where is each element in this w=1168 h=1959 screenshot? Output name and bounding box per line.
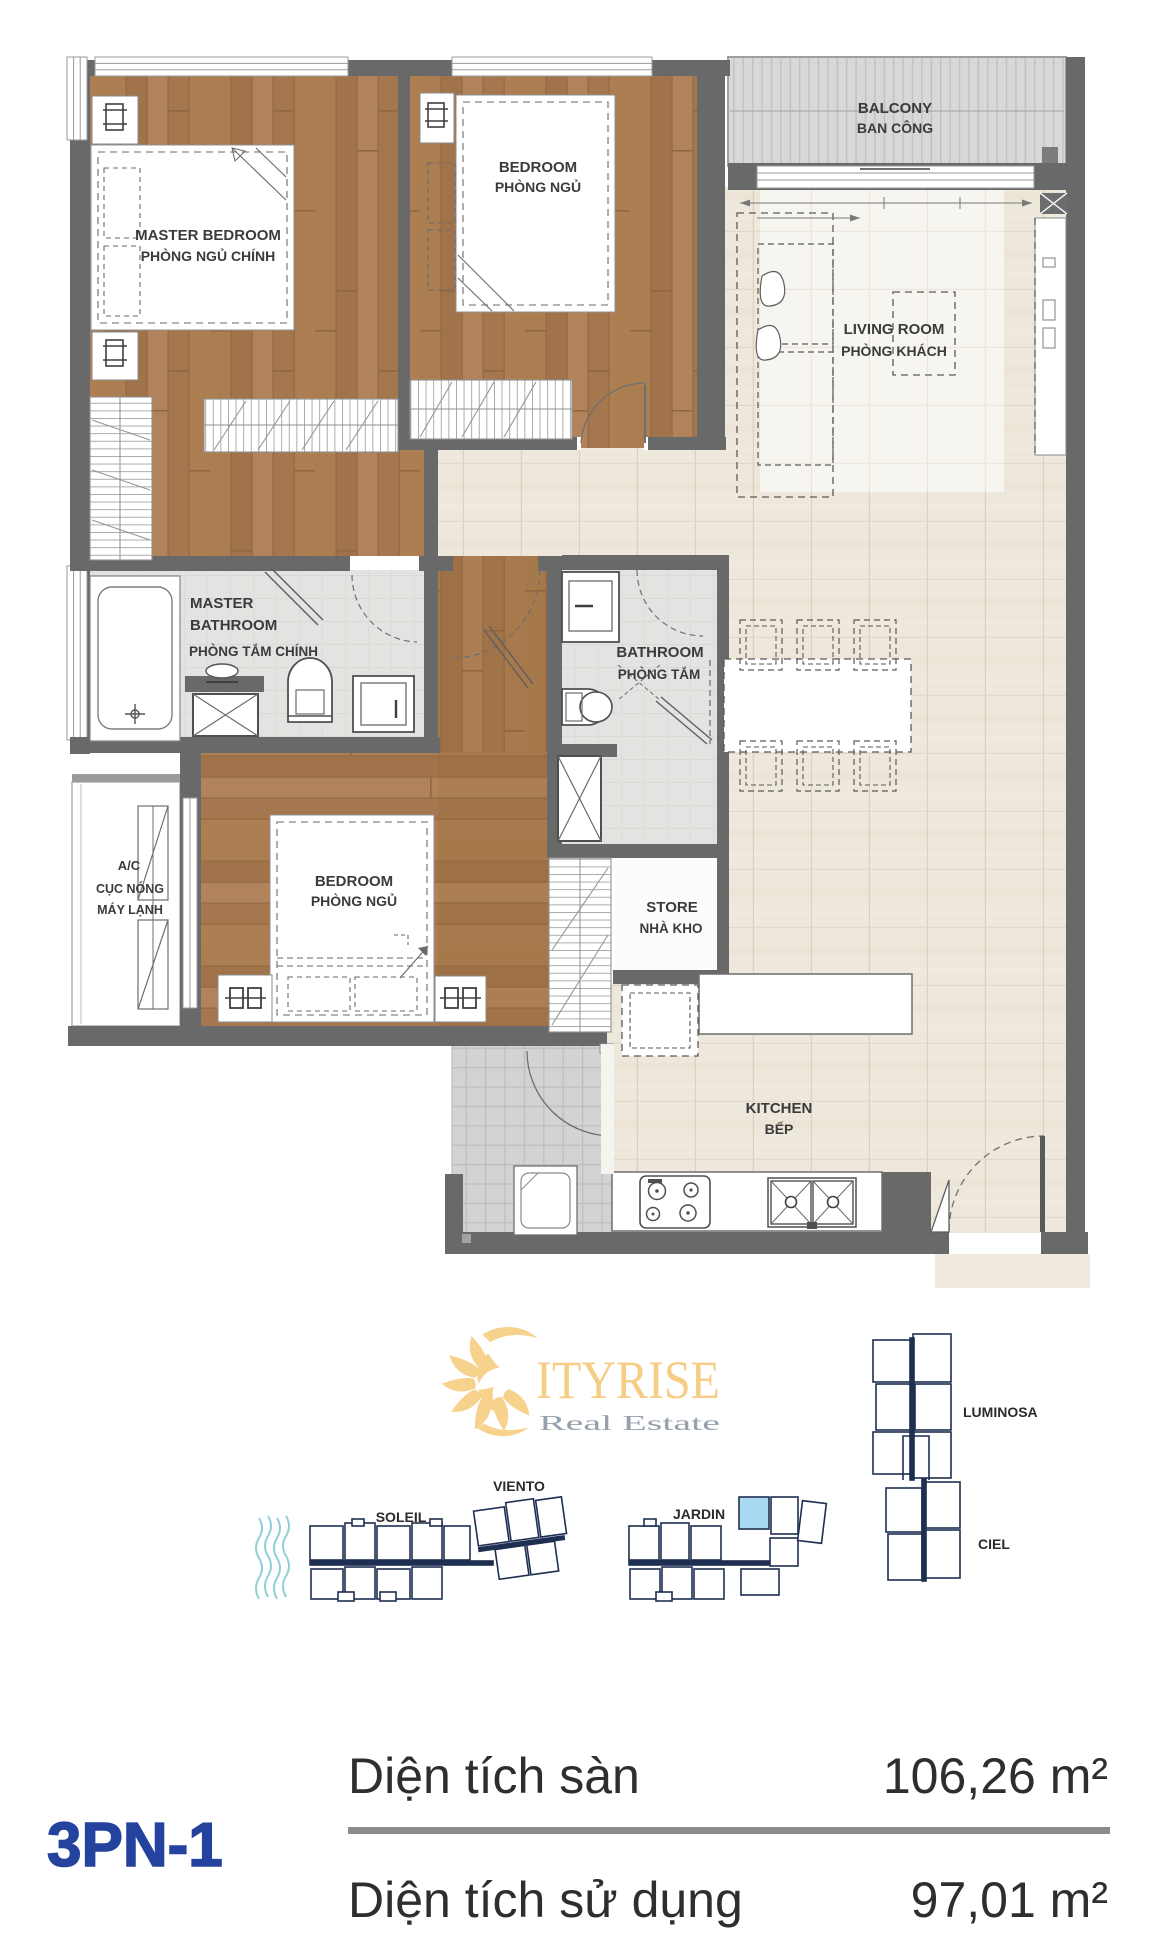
svg-text:STORE: STORE bbox=[646, 899, 697, 916]
svg-text:BẾP: BẾP bbox=[765, 1121, 794, 1137]
svg-text:A/C: A/C bbox=[118, 858, 141, 873]
svg-text:ITYRISE: ITYRISE bbox=[536, 1350, 720, 1410]
svg-text:LIVING ROOM: LIVING ROOM bbox=[844, 321, 945, 338]
svg-text:LUMINOSA: LUMINOSA bbox=[963, 1404, 1038, 1420]
svg-text:PHÒNG NGỦ CHÍNH: PHÒNG NGỦ CHÍNH bbox=[141, 247, 276, 264]
svg-text:BEDROOM: BEDROOM bbox=[315, 873, 393, 890]
svg-text:Diện tích sàn: Diện tích sàn bbox=[348, 1748, 640, 1804]
svg-text:BEDROOM: BEDROOM bbox=[499, 159, 577, 176]
svg-text:PHÒNG NGỦ: PHÒNG NGỦ bbox=[495, 178, 581, 195]
svg-text:BATHROOM: BATHROOM bbox=[616, 644, 703, 661]
svg-text:MASTER BEDROOM: MASTER BEDROOM bbox=[135, 227, 281, 244]
svg-text:JARDIN: JARDIN bbox=[673, 1506, 725, 1522]
svg-text:BALCONY: BALCONY bbox=[858, 100, 932, 117]
svg-text:3PN-1: 3PN-1 bbox=[47, 1811, 223, 1880]
svg-text:CIEL: CIEL bbox=[978, 1536, 1010, 1552]
svg-text:Real Estate: Real Estate bbox=[539, 1411, 720, 1435]
svg-text:97,01 m²: 97,01 m² bbox=[911, 1872, 1108, 1928]
svg-text:VIENTO: VIENTO bbox=[493, 1478, 545, 1494]
svg-text:PHÒNG NGỦ: PHÒNG NGỦ bbox=[311, 892, 397, 909]
svg-text:NHÀ KHO: NHÀ KHO bbox=[640, 921, 703, 936]
svg-text:106,26 m²: 106,26 m² bbox=[883, 1748, 1108, 1804]
svg-text:BAN CÔNG: BAN CÔNG bbox=[857, 119, 933, 136]
svg-text:MÁY LẠNH: MÁY LẠNH bbox=[97, 902, 163, 917]
svg-text:PHÒNG TẮM CHÍNH: PHÒNG TẮM CHÍNH bbox=[189, 644, 318, 659]
svg-text:PHÒNG KHÁCH: PHÒNG KHÁCH bbox=[841, 342, 947, 359]
svg-text:KITCHEN: KITCHEN bbox=[746, 1100, 813, 1117]
svg-text:CỤC NÓNG: CỤC NÓNG bbox=[96, 881, 164, 896]
svg-text:Diện tích sử dụng: Diện tích sử dụng bbox=[348, 1872, 743, 1928]
svg-text:BATHROOM: BATHROOM bbox=[190, 617, 277, 634]
svg-text:MASTER: MASTER bbox=[190, 595, 254, 612]
svg-text:PHÒNG TẮM: PHÒNG TẮM bbox=[618, 667, 701, 682]
